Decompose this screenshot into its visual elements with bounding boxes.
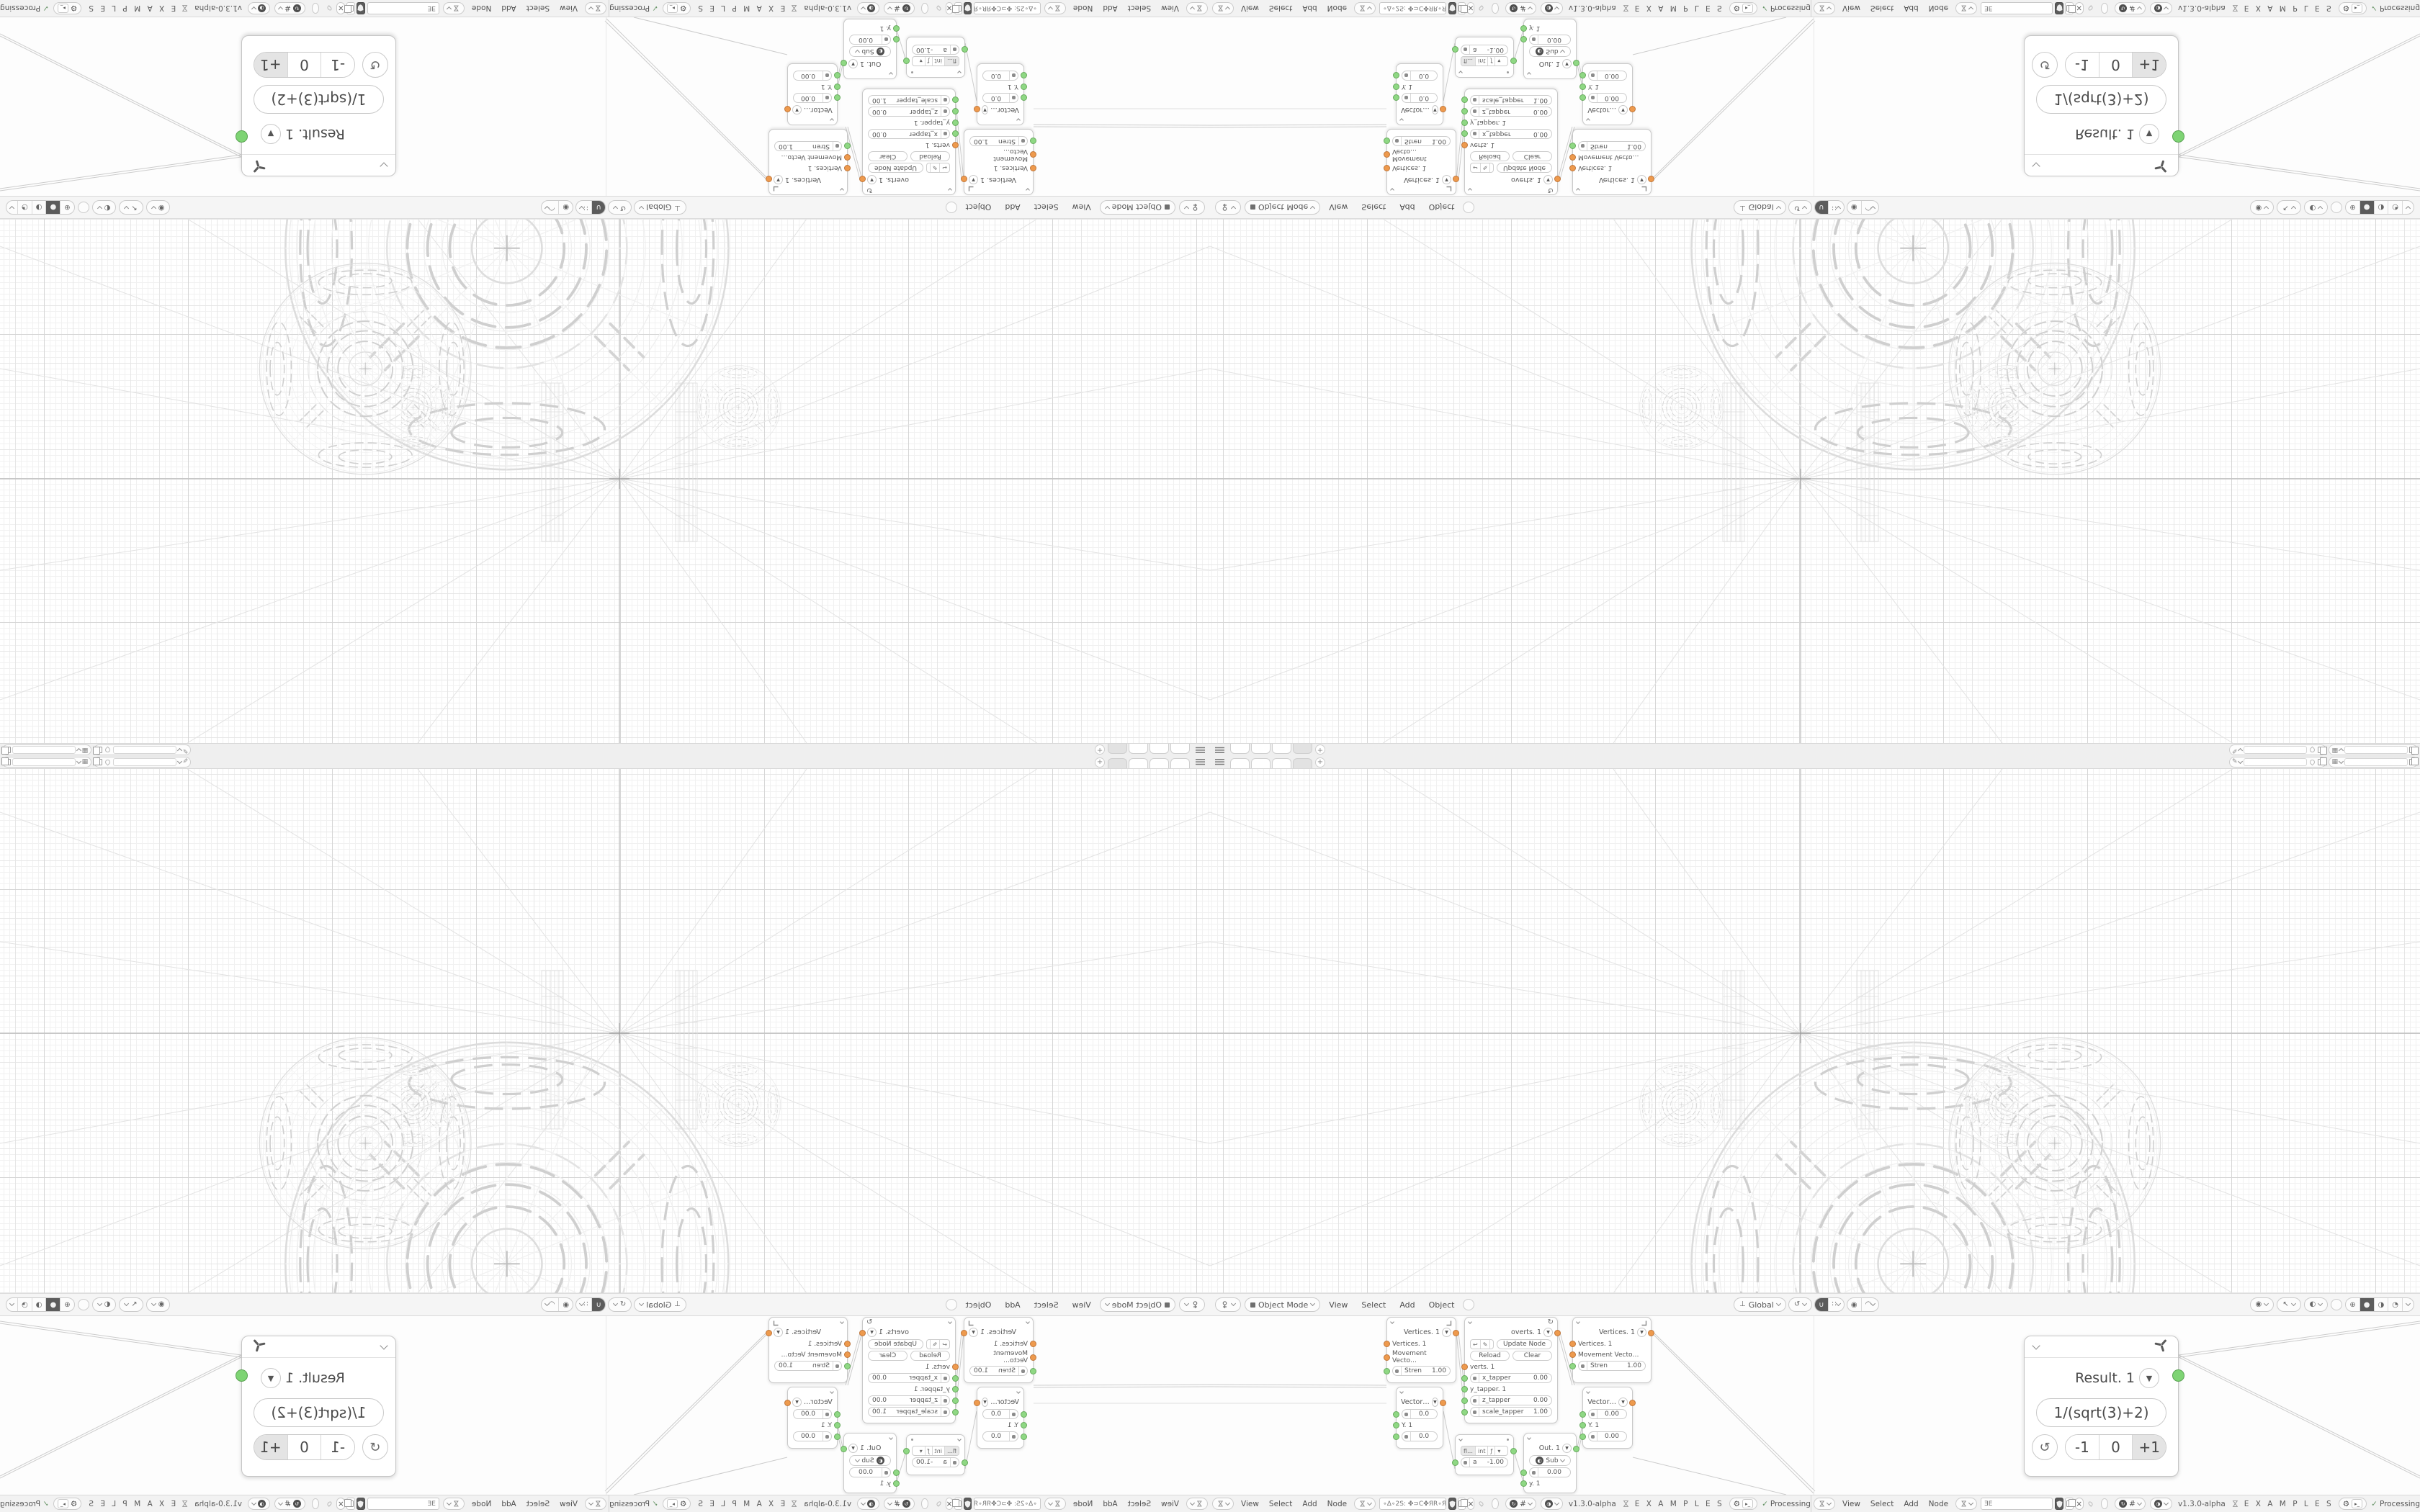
copy-icon[interactable] — [2318, 759, 2323, 765]
socket-orange-out[interactable] — [1629, 1400, 1636, 1406]
socket-orange-in[interactable] — [1569, 154, 1576, 161]
socket-green-in[interactable] — [952, 120, 959, 126]
socket-green-in[interactable] — [1520, 1480, 1527, 1487]
socket-orange-out[interactable] — [961, 1330, 967, 1336]
collapse-chevron-icon[interactable] — [2032, 162, 2040, 170]
proportional-edit-controls[interactable]: ◉ ◠ — [541, 200, 573, 215]
operation-selector[interactable]: ◐ Sub — [1529, 1455, 1571, 1466]
menu-node[interactable]: Node — [1327, 1500, 1347, 1508]
z-tapper-slider[interactable]: z_tapper 0.00 — [868, 107, 950, 117]
tool-buttons[interactable]: ⚙ ▸_ — [663, 1498, 691, 1510]
editor-type-selector[interactable]: ⋈ — [1814, 1498, 1835, 1510]
tree-name-field[interactable]: ∘Δ∘2S: ✤⊃C✤ЯR∘ЯR✤⊃C✤ :2S∘Δ∘ — [974, 2, 1041, 14]
socket-green-in[interactable] — [1461, 1409, 1468, 1416]
socket-orange-in[interactable] — [1030, 1354, 1036, 1361]
tool-buttons[interactable]: ⚙ ▸_ — [53, 1498, 81, 1510]
mode-selector[interactable]: Object Mode — [1245, 200, 1320, 215]
node-vertices-right[interactable]: Vertices. 1 ▼ Vertices. 1 Movement Vecto… — [768, 129, 848, 195]
pin-icon[interactable] — [2309, 747, 2316, 754]
fake-user-shield-button[interactable] — [1448, 1498, 1456, 1510]
snap-magnet-icon[interactable]: ∪ — [591, 201, 604, 214]
node-overts[interactable]: ↻ overts. 1 ▼ ↩ ✎ ↻ Update Node Reloa — [862, 1317, 956, 1423]
fake-user-shield-button[interactable] — [357, 1498, 365, 1510]
socket-green-out[interactable] — [903, 1448, 910, 1454]
header-extra-button[interactable] — [921, 3, 928, 14]
pin-icon[interactable] — [104, 747, 111, 754]
socket-green-out[interactable] — [1573, 1446, 1579, 1452]
vector-x-slider[interactable]: 0.00 — [793, 93, 832, 103]
menu-add[interactable]: Add — [501, 1500, 516, 1508]
vector-z-slider[interactable]: 0.00 — [793, 71, 832, 81]
menu-add[interactable]: Add — [1399, 1300, 1415, 1310]
editor-type-selector[interactable]: ⋈ — [1212, 2, 1234, 14]
minus-one-button[interactable]: -1 — [321, 53, 354, 77]
hamburger-menu-icon[interactable] — [1196, 759, 1205, 765]
menu-add[interactable]: Add — [1399, 203, 1415, 212]
transform-orientation-selector[interactable]: ⊥ Global — [634, 200, 686, 215]
header-extra-button[interactable] — [946, 1299, 957, 1310]
node-vector-left[interactable]: Vector… ▼ 0.0 Y. 1 0.0 — [1396, 1387, 1443, 1449]
operation-selector[interactable]: ◐ Sub — [849, 1455, 891, 1466]
strength-slider[interactable]: Stren 1.00 — [969, 1366, 1028, 1376]
socket-green-out[interactable] — [903, 58, 910, 65]
proportional-edit-icon[interactable]: ◉ — [1847, 201, 1862, 214]
collapse-chevron-icon[interactable] — [1016, 1390, 1021, 1394]
pivot-selector[interactable]: ↺ — [1788, 1297, 1812, 1312]
shading-material-icon[interactable]: ◑ — [32, 1298, 46, 1311]
copy-button[interactable] — [2065, 2, 2074, 14]
tool-buttons[interactable]: ⚙ ▸_ — [1729, 1498, 1757, 1510]
copy-icon[interactable] — [2318, 747, 2323, 753]
socket-green-in[interactable] — [1579, 73, 1586, 79]
editor-type-selector[interactable] — [1215, 1297, 1241, 1312]
node-tool-buttons[interactable]: ↩ ✎ ↻ — [926, 163, 950, 173]
reload-button[interactable]: Reload — [1470, 1351, 1510, 1361]
vector-z-slider[interactable]: 0.00 — [1588, 71, 1627, 81]
x-tapper-slider[interactable]: x_tapper 0.00 — [1470, 129, 1552, 139]
reload-button[interactable]: Reload — [1470, 151, 1510, 161]
sync-icon[interactable]: ↻ — [1490, 1340, 1494, 1349]
gear-icon[interactable]: ⚙ — [71, 4, 77, 13]
vector-x-slider[interactable]: 0.00 — [1588, 93, 1627, 103]
pin-icon[interactable] — [936, 1500, 941, 1506]
socket-orange-out[interactable] — [1440, 106, 1446, 112]
float-option[interactable]: fl… — [1461, 1446, 1476, 1455]
socket-green-in[interactable] — [1520, 1470, 1527, 1476]
menu-node[interactable]: Node — [1327, 4, 1347, 13]
socket-green-in[interactable] — [1579, 1422, 1586, 1428]
editor-type-selector[interactable] — [1179, 1297, 1205, 1312]
node-number[interactable]: fl… int ƒ ▾ a -1.00 — [1455, 37, 1514, 78]
menu-select[interactable]: Select — [1269, 4, 1292, 13]
proportional-edit-controls[interactable]: ◉ ◠ — [1847, 200, 1879, 215]
undo-icon[interactable]: ↩ — [1471, 1340, 1481, 1349]
scale-tapper-slider[interactable]: scale_tapper 1.00 — [868, 95, 950, 105]
sync-icon[interactable]: ↻ — [1490, 163, 1494, 172]
expression-field[interactable]: 1/(sqrt(3)+2) — [254, 1398, 384, 1427]
gizmo-selector[interactable]: ↖ — [119, 200, 143, 215]
expression-field[interactable]: 1/(sqrt(3)+2) — [254, 85, 384, 114]
pin-icon[interactable] — [327, 5, 333, 12]
image-name-field[interactable] — [2344, 746, 2408, 754]
menu-add[interactable]: Add — [1005, 1300, 1020, 1310]
refresh-button[interactable]: ↺ — [2032, 1434, 2058, 1460]
fake-user-shield-button[interactable] — [1448, 2, 1456, 14]
minus-one-button[interactable]: -1 — [321, 1435, 354, 1459]
shading-wireframe-icon[interactable]: ⊕ — [60, 1298, 73, 1311]
menu-add[interactable]: Add — [1005, 203, 1020, 212]
node-editor-area[interactable]: Vertices. 1 ▼ Vertices. 1 Movement Vecto… — [0, 17, 1210, 196]
collapse-chevron-icon[interactable] — [1390, 189, 1394, 193]
operation-selector[interactable]: ◐ Sub — [1529, 46, 1571, 57]
result-dropdown-button[interactable]: ▼ — [261, 124, 281, 144]
editor-type-selector[interactable]: ⋈ — [585, 2, 606, 14]
collapse-chevron-icon[interactable] — [1399, 1390, 1404, 1394]
header-extra-button[interactable] — [2331, 1299, 2342, 1310]
tool-buttons[interactable]: ⚙ ▸_ — [2339, 2, 2367, 14]
menu-node[interactable]: Node — [472, 1500, 491, 1508]
copy-button[interactable] — [1458, 1498, 1466, 1510]
dropdown-button[interactable]: ▼ — [982, 1398, 988, 1407]
node-vertices-right[interactable]: Vertices. 1 ▼ Vertices. 1 Movement Vecto… — [768, 1317, 848, 1383]
collapse-chevron-icon[interactable] — [948, 1320, 952, 1324]
result-panel[interactable]: Result. 1 ▼ 1/(sqrt(3)+2) ↺ -1 0 +1 — [241, 35, 396, 176]
workspace-tab[interactable] — [1170, 758, 1190, 768]
image-datablock-selector[interactable]: ▦ — [2329, 757, 2418, 768]
reload-button[interactable]: Reload — [910, 1351, 950, 1361]
tree-name-field[interactable]: ƎE — [367, 2, 439, 14]
socket-orange-in[interactable] — [1384, 165, 1390, 171]
result-socket-green[interactable] — [2172, 130, 2184, 143]
vector-x-slider[interactable]: 0.0 — [982, 1409, 1018, 1419]
out-value-slider[interactable]: 0.00 — [1529, 35, 1571, 45]
snap-target-selector[interactable]: ∷ — [576, 201, 591, 214]
socket-green-in[interactable] — [1030, 1368, 1036, 1374]
editor-type-selector[interactable]: ⋈ — [1186, 2, 1208, 14]
terminal-icon[interactable]: ▸_ — [2352, 1499, 2362, 1508]
result-socket-green[interactable] — [2172, 1369, 2184, 1382]
plus-one-button[interactable]: +1 — [2133, 53, 2166, 77]
brush-datablock-selector[interactable]: ✎ — [94, 744, 192, 755]
socket-green-out[interactable] — [841, 1446, 847, 1452]
add-workspace-button[interactable]: + — [1095, 757, 1105, 768]
copy-icon[interactable] — [97, 759, 102, 765]
image-name-field[interactable] — [2344, 758, 2408, 766]
tree-name-field[interactable]: ∘Δ∘2S: ✤⊃C✤ЯR∘ЯR✤⊃C✤ :2S∘Δ∘ — [1379, 2, 1446, 14]
result-socket-green[interactable] — [236, 130, 248, 143]
snapping-controls[interactable]: ∪ ∷ — [1814, 1297, 1845, 1312]
tree-name-field[interactable]: ƎE — [1981, 2, 2053, 14]
workspace-tab[interactable] — [1129, 744, 1148, 754]
pin-icon[interactable] — [2087, 5, 2094, 12]
a-value-slider[interactable]: a -1.00 — [1461, 45, 1508, 55]
shading-mode-switcher[interactable]: ⊕ ● ◑ ◔ — [2345, 200, 2414, 215]
snapping-controls[interactable]: ∪ ∷ — [1814, 200, 1845, 215]
fake-user-shield-button[interactable] — [2055, 2, 2063, 14]
socket-orange-out[interactable] — [1554, 176, 1561, 182]
socket-green-in[interactable] — [834, 1411, 841, 1418]
dropdown-cell[interactable]: ▾ — [918, 1446, 925, 1455]
menu-view[interactable]: View — [1329, 203, 1348, 212]
collapse-chevron-icon[interactable] — [1527, 1436, 1531, 1440]
tree-name-field[interactable]: ∘Δ∘2S: ✤⊃C✤ЯR∘ЯR✤⊃C✤ :2S∘Δ∘ — [974, 1498, 1041, 1510]
node-number[interactable]: fl… int ƒ ▾ a -1.00 — [1455, 1434, 1514, 1475]
header-extra-button[interactable] — [2331, 202, 2342, 213]
socket-green-in[interactable] — [1384, 138, 1390, 145]
vector-x-slider[interactable]: 0.0 — [1402, 93, 1438, 103]
terminal-icon[interactable]: ▸_ — [58, 1499, 68, 1508]
gear-icon[interactable]: ⚙ — [71, 1500, 77, 1508]
socket-orange-in[interactable] — [1384, 1354, 1390, 1361]
copy-button[interactable] — [346, 2, 355, 14]
falloff-selector[interactable]: ◠ — [1862, 201, 1879, 214]
strength-slider[interactable]: Stren 1.00 — [1578, 1361, 1646, 1371]
dropdown-button[interactable]: ▼ — [1637, 175, 1646, 184]
socket-green-in[interactable] — [1461, 1386, 1468, 1392]
dropdown-cell[interactable]: ▾ — [1495, 1446, 1502, 1455]
operation-selector[interactable]: ◐ Sub — [849, 46, 891, 57]
vector-z-slider[interactable]: 0.00 — [793, 1431, 832, 1441]
mode-selector[interactable]: Object Mode — [1100, 200, 1175, 215]
pin-icon[interactable] — [104, 759, 111, 766]
socket-orange-out[interactable] — [974, 106, 980, 112]
socket-green-out[interactable] — [1510, 1448, 1517, 1454]
snap-target-selector[interactable]: ∷ — [576, 1298, 591, 1311]
collapse-chevron-icon[interactable] — [957, 1437, 962, 1441]
collapse-chevron-icon[interactable] — [380, 1341, 387, 1349]
plus-one-button[interactable]: +1 — [254, 1435, 287, 1459]
snapping-controls[interactable]: ∪ ∷ — [575, 200, 606, 215]
terminal-icon[interactable]: ▸_ — [58, 4, 68, 13]
menu-object[interactable]: Object — [1429, 1300, 1455, 1310]
socket-green-in[interactable] — [1393, 1411, 1399, 1418]
sync-grid-controls[interactable]: ↻ # — [2115, 1498, 2146, 1510]
socket-orange-out[interactable] — [974, 1400, 980, 1406]
node-vertices-left[interactable]: Vertices. 1 ▼ Vertices. 1 Movement Vecto… — [1386, 1317, 1456, 1383]
float-option[interactable]: fl… — [944, 1446, 959, 1455]
vector-z-slider[interactable]: 0.0 — [1402, 1431, 1438, 1441]
socket-orange-out[interactable] — [1453, 176, 1459, 182]
socket-orange-out[interactable] — [859, 1330, 866, 1336]
out-value-slider[interactable]: 0.00 — [849, 35, 891, 45]
snap-magnet-icon[interactable]: ∪ — [1815, 1298, 1828, 1311]
editor-type-selector[interactable]: ⋈ — [585, 1498, 606, 1510]
number-type-switcher[interactable]: fl… int ƒ ▾ — [912, 56, 959, 66]
socket-orange-out[interactable] — [784, 106, 791, 112]
overlay-toggle[interactable]: ◐ — [2304, 1297, 2329, 1312]
shading-rendered-icon[interactable]: ◔ — [17, 1298, 32, 1311]
workspace-tab[interactable] — [1129, 758, 1148, 768]
update-node-button[interactable]: Update Node — [1497, 163, 1552, 173]
collapse-chevron-icon[interactable] — [380, 162, 387, 170]
plus-one-button[interactable]: +1 — [2133, 1435, 2166, 1459]
header-extra-button[interactable] — [78, 1299, 89, 1310]
node-tool-buttons[interactable]: ↩ ✎ ↻ — [1470, 163, 1494, 173]
sync-grid-controls[interactable]: ↻ # — [1505, 2, 1536, 14]
sync-grid-controls[interactable]: ↻ # — [1505, 1498, 1536, 1510]
menu-view[interactable]: View — [1072, 203, 1091, 212]
menu-select[interactable]: Select — [1128, 4, 1151, 13]
minus-one-button[interactable]: -1 — [2066, 53, 2099, 77]
socket-green-in[interactable] — [952, 1386, 959, 1392]
socket-orange-out[interactable] — [1453, 1330, 1459, 1336]
shading-material-icon[interactable]: ◑ — [2375, 201, 2389, 214]
collapse-chevron-icon[interactable] — [2032, 1341, 2040, 1349]
result-dropdown-button[interactable]: ▼ — [2139, 124, 2159, 144]
terminal-icon[interactable]: ▸_ — [1742, 4, 1753, 13]
workspace-tab[interactable] — [1230, 744, 1250, 754]
collapse-chevron-icon[interactable] — [1468, 189, 1472, 193]
node-out-sub[interactable]: Out. 1 ▼ ◐ Sub 0.00 y. 1 — [843, 19, 897, 79]
socket-green-in[interactable] — [1579, 1434, 1586, 1440]
collapse-chevron-icon[interactable] — [830, 1390, 834, 1394]
refresh-button[interactable]: ↺ — [362, 52, 388, 78]
close-button[interactable]: × — [2075, 2, 2084, 14]
collapse-chevron-icon[interactable] — [1026, 1320, 1030, 1324]
sync-grid-controls[interactable]: ↻ # — [884, 1498, 915, 1510]
menu-node[interactable]: Node — [1929, 1500, 1948, 1508]
tree-selector[interactable]: ⋈ — [1044, 2, 1066, 14]
tree-name-field[interactable]: ƎE — [367, 1498, 439, 1510]
workspace-tab[interactable] — [1170, 744, 1190, 754]
socket-green-in[interactable] — [834, 1422, 841, 1428]
socket-orange-in[interactable] — [1569, 165, 1576, 171]
menu-select[interactable]: Select — [1870, 4, 1894, 13]
node-vertices-left[interactable]: Vertices. 1 ▼ Vertices. 1 Movement Vecto… — [964, 129, 1034, 195]
dropdown-button[interactable]: ▼ — [1442, 175, 1451, 184]
socket-orange-in[interactable] — [1384, 152, 1390, 158]
function-icon[interactable]: ƒ — [925, 1446, 932, 1455]
socket-green-in[interactable] — [1384, 1368, 1390, 1374]
socket-green-in[interactable] — [1461, 1375, 1468, 1382]
image-datablock-selector[interactable]: ▦ — [2, 744, 91, 755]
overlay-toggle[interactable]: ◐ — [92, 1297, 117, 1312]
display-controls[interactable]: ◑ — [2150, 1498, 2172, 1510]
snap-magnet-icon[interactable]: ∪ — [591, 1298, 604, 1311]
display-controls[interactable]: ◑ — [857, 1498, 879, 1510]
socket-green-in[interactable] — [1021, 1411, 1027, 1418]
menu-add[interactable]: Add — [1103, 1500, 1117, 1508]
collapse-chevron-icon[interactable] — [1576, 1320, 1580, 1324]
socket-green-in[interactable] — [844, 1363, 851, 1369]
shading-solid-icon[interactable]: ● — [2360, 1298, 2375, 1311]
socket-green-in[interactable] — [962, 1459, 968, 1466]
menu-object[interactable]: Object — [1429, 203, 1455, 212]
gizmo-selector[interactable]: ↖ — [119, 1297, 143, 1312]
socket-green-in[interactable] — [1461, 109, 1468, 115]
area-divider[interactable] — [1814, 1316, 1814, 1495]
node-overts[interactable]: ↻ overts. 1 ▼ ↩ ✎ ↻ Update Node Reloa — [862, 89, 956, 195]
number-type-switcher[interactable]: fl… int ƒ ▾ — [1461, 1446, 1508, 1456]
shading-rendered-icon[interactable]: ◔ — [2388, 1298, 2403, 1311]
socket-green-in[interactable] — [1393, 1434, 1399, 1440]
workspace-tab-active[interactable] — [1293, 744, 1312, 754]
node-vertices-left[interactable]: Vertices. 1 ▼ Vertices. 1 Movement Vecto… — [964, 1317, 1034, 1383]
viewport-3d[interactable] — [1210, 769, 2420, 1293]
viewport-3d[interactable] — [0, 769, 1210, 1293]
menu-view[interactable]: View — [1241, 4, 1259, 13]
node-vector-right[interactable]: Vector… ▼ 0.00 Y. 1 0.00 — [787, 63, 838, 125]
socket-orange-in[interactable] — [952, 1364, 959, 1370]
menu-view[interactable]: View — [1161, 1500, 1179, 1508]
proportional-edit-icon[interactable]: ◉ — [558, 1298, 573, 1311]
viewport-3d[interactable] — [1210, 219, 2420, 743]
expression-field[interactable]: 1/(sqrt(3)+2) — [2036, 1398, 2166, 1427]
update-node-button[interactable]: Update Node — [868, 163, 923, 173]
plus-one-button[interactable]: +1 — [254, 53, 287, 77]
vector-z-slider[interactable]: 0.0 — [982, 71, 1018, 81]
float-option[interactable]: fl… — [944, 57, 959, 66]
dropdown-button[interactable]: ▼ — [1637, 1328, 1646, 1337]
fake-user-shield-button[interactable] — [964, 2, 972, 14]
shading-mode-switcher[interactable]: ⊕ ● ◑ ◔ — [2345, 1297, 2414, 1312]
fake-user-shield-button[interactable] — [2055, 1498, 2063, 1510]
close-button[interactable]: × — [1467, 1498, 1475, 1510]
socket-orange-out[interactable] — [1629, 106, 1636, 112]
expression-field[interactable]: 1/(sqrt(3)+2) — [2036, 85, 2166, 114]
copy-button[interactable] — [346, 1498, 355, 1510]
dropdown-button[interactable]: ▼ — [792, 105, 802, 114]
socket-orange-out[interactable] — [1554, 1330, 1561, 1336]
collapse-chevron-icon[interactable] — [1527, 73, 1531, 77]
update-node-button[interactable]: Update Node — [868, 1339, 923, 1349]
terminal-icon[interactable]: ▸_ — [667, 4, 678, 13]
tool-buttons[interactable]: ⚙ ▸_ — [2339, 1498, 2367, 1510]
dropdown-button[interactable]: ▼ — [969, 1328, 978, 1337]
copy-icon[interactable] — [2409, 747, 2415, 753]
menu-select[interactable]: Select — [526, 1500, 550, 1508]
menu-view[interactable]: View — [1329, 1300, 1348, 1310]
gear-icon[interactable]: ⚙ — [680, 4, 686, 13]
socket-orange-out[interactable] — [961, 176, 967, 182]
dropdown-button[interactable]: ▼ — [1618, 1398, 1628, 1407]
function-icon[interactable]: ƒ — [1488, 57, 1495, 66]
transform-orientation-selector[interactable]: ⊥ Global — [634, 1297, 686, 1312]
copy-icon[interactable] — [5, 759, 11, 765]
strength-slider[interactable]: Stren 1.00 — [774, 1361, 842, 1371]
socket-green-in[interactable] — [1461, 97, 1468, 104]
close-button[interactable]: × — [1467, 2, 1475, 14]
scale-tapper-slider[interactable]: scale_tapper 1.00 — [868, 1407, 950, 1417]
menu-view[interactable]: View — [1241, 1500, 1259, 1508]
dropdown-button[interactable]: ▼ — [1618, 105, 1628, 114]
display-controls[interactable]: ◑ — [248, 2, 270, 14]
editor-type-selector[interactable] — [1215, 200, 1241, 215]
vector-x-slider[interactable]: 0.00 — [1588, 1409, 1627, 1419]
socket-green-in[interactable] — [1021, 84, 1027, 90]
proportional-edit-controls[interactable]: ◉ ◠ — [1847, 1297, 1879, 1312]
display-controls[interactable]: ◑ — [2150, 2, 2172, 14]
socket-green-out[interactable] — [841, 60, 847, 66]
socket-green-in[interactable] — [834, 1434, 841, 1440]
node-out-sub[interactable]: Out. 1 ▼ ◐ Sub 0.00 y. 1 — [843, 1433, 897, 1493]
strength-slider[interactable]: Stren 1.00 — [1578, 141, 1646, 151]
tree-selector[interactable]: ⋈ — [1955, 2, 1977, 14]
dropdown-button[interactable]: ▼ — [1442, 1328, 1451, 1337]
socket-green-in[interactable] — [893, 25, 900, 32]
add-workspace-button[interactable]: + — [1315, 757, 1325, 768]
socket-green-in[interactable] — [952, 1398, 959, 1404]
tree-selector[interactable]: ⋈ — [443, 2, 465, 14]
gear-icon[interactable]: ⚙ — [680, 1500, 686, 1508]
zero-button[interactable]: 0 — [2099, 53, 2133, 77]
hamburger-menu-icon[interactable] — [1196, 747, 1205, 753]
terminal-icon[interactable]: ▸_ — [2352, 4, 2362, 13]
vector-z-slider[interactable]: 0.0 — [982, 1431, 1018, 1441]
socket-green-in[interactable] — [1393, 73, 1399, 79]
tool-buttons[interactable]: ⚙ ▸_ — [1729, 2, 1757, 14]
vector-z-slider[interactable]: 0.00 — [1588, 1431, 1627, 1441]
